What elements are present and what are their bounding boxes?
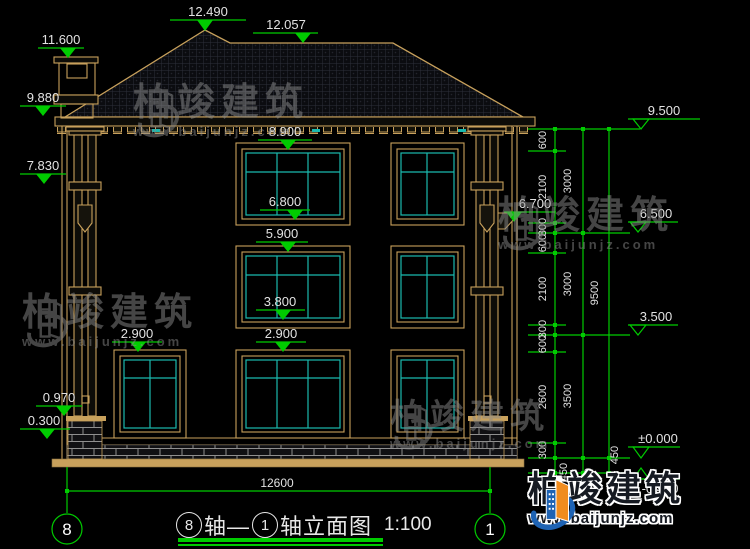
right-column bbox=[468, 127, 515, 459]
company-logo: 柏竣建筑 www.baijunjz.com bbox=[528, 472, 684, 526]
elevation-drawing-canvas: 12.490 12.057 11.600 9.880 7.830 8.900 6… bbox=[0, 0, 750, 549]
wall-corners bbox=[62, 126, 517, 459]
level-marker-eave-left: 9.880 bbox=[20, 90, 66, 116]
title-axis-from-bubble: 8 bbox=[176, 512, 202, 538]
window-2f-center bbox=[236, 246, 350, 328]
building-elevation bbox=[52, 30, 535, 467]
level-label: 9.880 bbox=[27, 90, 60, 105]
dim-label: 2600 bbox=[537, 385, 549, 409]
bottom-dimension: 12600 bbox=[65, 467, 492, 513]
level-label: 12.490 bbox=[188, 4, 228, 19]
logo-building-icon bbox=[528, 472, 580, 532]
dim-label: 600 bbox=[537, 234, 549, 252]
drawing-title: 8 轴— 1 轴立面图 1:100 bbox=[176, 509, 432, 541]
level-marker-f1-head-left: 2.900 bbox=[112, 326, 162, 352]
dim-label: 2100 bbox=[537, 277, 549, 301]
axis-number: 8 bbox=[62, 520, 71, 539]
dim-label: 3500 bbox=[562, 384, 574, 408]
title-joiner: 轴— bbox=[204, 509, 250, 541]
ground-slab bbox=[52, 459, 524, 467]
dim-label: 9500 bbox=[589, 281, 601, 305]
level-marker-ridge: 12.490 bbox=[170, 4, 246, 31]
axis-number: 1 bbox=[485, 520, 494, 539]
left-column bbox=[66, 127, 106, 459]
window-1f-right bbox=[391, 350, 464, 438]
level-label: 0.970 bbox=[43, 390, 76, 405]
dim-label: 3000 bbox=[562, 169, 574, 193]
level-marker-chimney: 11.600 bbox=[38, 32, 84, 58]
level-marker-ground: ±0.000 bbox=[628, 431, 680, 458]
level-label: ±0.000 bbox=[638, 431, 678, 446]
axis-bubble-right: 1 bbox=[475, 514, 505, 544]
title-scale: 1:100 bbox=[384, 514, 432, 536]
level-label: 3.500 bbox=[640, 309, 673, 324]
dim-label: 600 bbox=[537, 335, 549, 353]
level-label: 3.800 bbox=[264, 294, 297, 309]
window-3f-right bbox=[391, 143, 464, 225]
level-marker-f3-sill: 6.800 bbox=[260, 194, 310, 220]
level-marker-f2-head: 5.900 bbox=[256, 226, 308, 252]
dim-label: 450 bbox=[609, 446, 621, 464]
level-marker-band-upper: 6.500 bbox=[628, 206, 678, 232]
level-label: 6.800 bbox=[269, 194, 302, 209]
level-marker-band-lower: 3.500 bbox=[628, 309, 678, 335]
level-label: 12.057 bbox=[266, 17, 306, 32]
base-band bbox=[52, 438, 524, 467]
dimension-chains-right: 600 2100 300 600 2100 300 600 2600 300 4… bbox=[528, 127, 640, 486]
level-label: 0.300 bbox=[28, 413, 61, 428]
level-label: 2.900 bbox=[121, 326, 154, 341]
title-axis-to-bubble: 1 bbox=[252, 512, 278, 538]
level-label: 7.830 bbox=[27, 158, 60, 173]
level-marker-ridge-right: 12.057 bbox=[253, 17, 318, 43]
dim-label: 3000 bbox=[562, 272, 574, 296]
level-label: 11.600 bbox=[42, 32, 81, 47]
level-label: 2.900 bbox=[265, 326, 298, 341]
dim-label: 600 bbox=[537, 131, 549, 149]
level-marker-eave-right: 9.500 bbox=[628, 103, 700, 129]
axis-bubble-left: 8 bbox=[52, 514, 82, 544]
title-text: 轴立面图 bbox=[280, 509, 372, 541]
window-1f-left bbox=[114, 350, 186, 438]
window-2f-right bbox=[391, 246, 464, 328]
dim-label: 2100 bbox=[537, 175, 549, 199]
level-label: 5.900 bbox=[266, 226, 299, 241]
dim-label: 300 bbox=[537, 218, 549, 236]
dim-label: 300 bbox=[537, 441, 549, 459]
title-underline-thin bbox=[178, 544, 383, 546]
brick-base bbox=[67, 445, 517, 459]
cad-linework: 12.490 12.057 11.600 9.880 7.830 8.900 6… bbox=[0, 0, 750, 549]
hip-roof bbox=[65, 30, 523, 117]
level-marker-f1-head: 2.900 bbox=[256, 326, 306, 352]
window-1f-center bbox=[236, 350, 350, 438]
title-underline-thick bbox=[178, 538, 383, 542]
level-label: 6.500 bbox=[640, 206, 673, 221]
level-label: 8.900 bbox=[269, 124, 302, 139]
total-width-label: 12600 bbox=[260, 476, 294, 490]
level-marker-capital-left: 7.830 bbox=[20, 158, 66, 184]
level-label: 9.500 bbox=[648, 103, 681, 118]
level-marker-f2-sill: 3.800 bbox=[256, 294, 305, 320]
